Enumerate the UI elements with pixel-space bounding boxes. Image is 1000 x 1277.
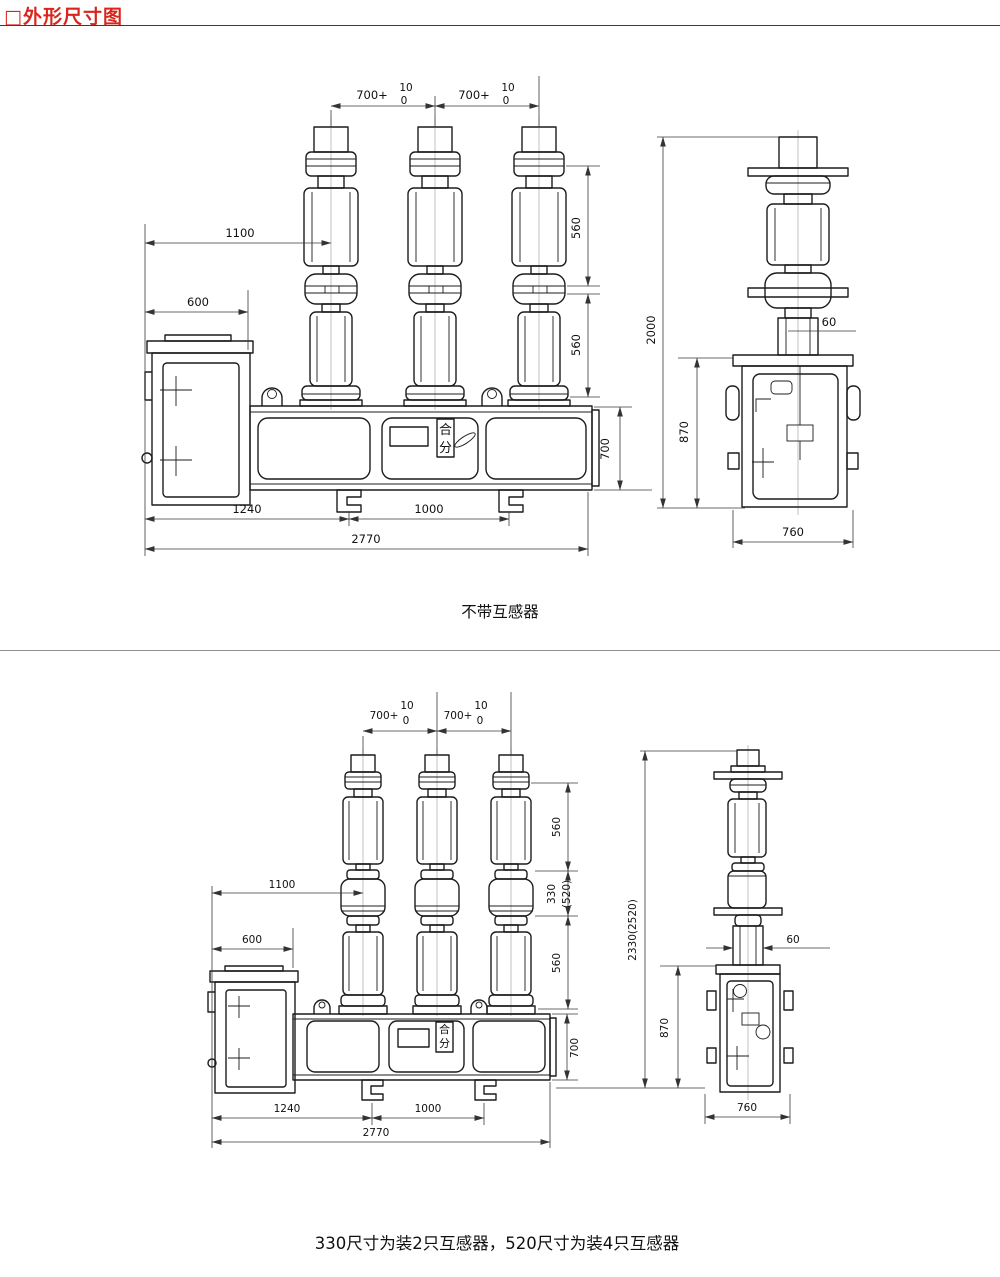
dim-lower-insulator: 560 — [569, 334, 583, 356]
pole-column-a — [300, 118, 362, 410]
dim-pitch-tol-upper-2: 10 — [474, 700, 487, 712]
front-view-ct: 合 分 — [208, 748, 556, 1100]
dim-pitch-tol-upper-1: 10 — [399, 82, 412, 94]
dim-base-span-left: 1240 — [232, 502, 261, 516]
dim-cabinet-height: 870 — [677, 421, 691, 443]
lifting-lug — [482, 388, 502, 406]
mounting-foot — [475, 1080, 496, 1100]
dim-ct-section-alt: (520) — [561, 880, 573, 908]
dim-cabinet-depth: 760 — [737, 1102, 757, 1114]
side-view — [726, 130, 860, 515]
dim-overall-width: 2770 — [351, 532, 380, 546]
dim-pole-width: 60 — [822, 315, 837, 329]
dim-upper-insulator: 560 — [551, 817, 563, 837]
pole-column-b — [404, 118, 466, 410]
pole-column-c — [508, 118, 570, 410]
dim-base-span-left: 1240 — [274, 1103, 301, 1115]
dim-pole-pitch-2: 700+ — [458, 88, 490, 102]
hinge-tab — [208, 992, 215, 1012]
section-divider — [0, 650, 1000, 651]
dim-pitch-tol-lower-1: 0 — [401, 95, 408, 107]
dim-pitch-tol-upper-2: 10 — [501, 82, 514, 94]
control-cabinet — [142, 335, 253, 505]
side-view-ct — [707, 745, 793, 1100]
dim-pitch-tol-lower-2: 0 — [477, 715, 484, 727]
dim-upper-insulator: 560 — [569, 217, 583, 239]
beam-panel-right — [473, 1021, 545, 1072]
hinge-tab — [707, 991, 716, 1010]
dim-lower-insulator: 560 — [551, 953, 563, 973]
pole-column-b — [413, 748, 461, 1016]
hinge-tab — [726, 386, 739, 420]
switch-close-label: 合 — [439, 423, 452, 438]
dim-cabinet-width: 600 — [187, 295, 209, 309]
dim-pitch-tol-lower-1: 0 — [403, 715, 410, 727]
dim-overall-height: 2000 — [644, 315, 658, 344]
mounting-foot — [499, 490, 523, 512]
side-knob — [142, 453, 152, 463]
dim-frame-height: 700 — [569, 1038, 581, 1058]
dim-base-span-right: 1000 — [415, 1103, 442, 1115]
switch-close-label: 合 — [439, 1022, 450, 1036]
dim-pole-pitch-2: 700+ — [444, 710, 473, 722]
switch-open-label: 分 — [439, 1037, 450, 1050]
drawing-sheet: □外形尺寸图 — [0, 0, 1000, 1277]
dim-pitch-tol-upper-1: 10 — [400, 700, 413, 712]
operating-lever — [453, 431, 477, 450]
dim-ct-section: 330 — [546, 884, 558, 904]
dim-pole-pitch-1: 700+ — [370, 710, 399, 722]
hinge-tab — [707, 1048, 716, 1063]
beam-panel-right — [486, 418, 586, 479]
beam-panel-left — [258, 418, 370, 479]
dim-overall-height: 2330(2520) — [627, 899, 639, 961]
dim-pole-pitch-1: 700+ — [356, 88, 388, 102]
dim-overall-width: 2770 — [363, 1127, 390, 1139]
mounting-foot — [362, 1080, 383, 1100]
frame-beam: 合 分 — [293, 1000, 556, 1100]
figure-with-ct: 合 分 — [0, 660, 1000, 1260]
mounting-foot — [337, 490, 361, 512]
hinge-tab — [847, 386, 860, 420]
door-handle-cross — [160, 376, 192, 476]
figure2-caption: 330尺寸为装2只互感器，520尺寸为装4只互感器 — [315, 1234, 680, 1253]
dim-cabinet-depth: 760 — [782, 525, 804, 539]
dim-terminal-reach: 1100 — [225, 226, 254, 240]
hinge-tab — [847, 453, 858, 469]
dim-terminal-reach: 1100 — [269, 879, 296, 891]
figure1-caption: 不带互感器 — [461, 603, 539, 621]
beam-panel-left — [307, 1021, 379, 1072]
indicator-window — [398, 1029, 429, 1047]
switch-open-label: 分 — [439, 441, 452, 456]
dim-cabinet-width: 600 — [242, 934, 262, 946]
dim-pole-width: 60 — [786, 934, 799, 946]
dim-base-span-right: 1000 — [414, 502, 443, 516]
side-cabinet — [707, 965, 793, 1092]
side-cabinet — [726, 355, 860, 507]
front-view: 合 分 — [142, 118, 599, 512]
pole-column-c — [487, 748, 535, 1016]
dim-frame-height: 700 — [598, 438, 612, 460]
title-divider — [0, 25, 1000, 26]
control-cabinet — [208, 966, 298, 1093]
hinge-tab — [728, 453, 739, 469]
dim-cabinet-height: 870 — [659, 1018, 671, 1038]
indicator-window — [390, 427, 428, 446]
hinge-tab — [145, 372, 152, 400]
door-handle-cross — [228, 996, 250, 1070]
pole-column-a — [339, 748, 387, 1016]
hinge-tab — [784, 1048, 793, 1063]
hinge-tab — [784, 991, 793, 1010]
figure-without-ct: 合 分 — [0, 30, 1000, 650]
lifting-lug — [262, 388, 282, 406]
dim-pitch-tol-lower-2: 0 — [503, 95, 510, 107]
